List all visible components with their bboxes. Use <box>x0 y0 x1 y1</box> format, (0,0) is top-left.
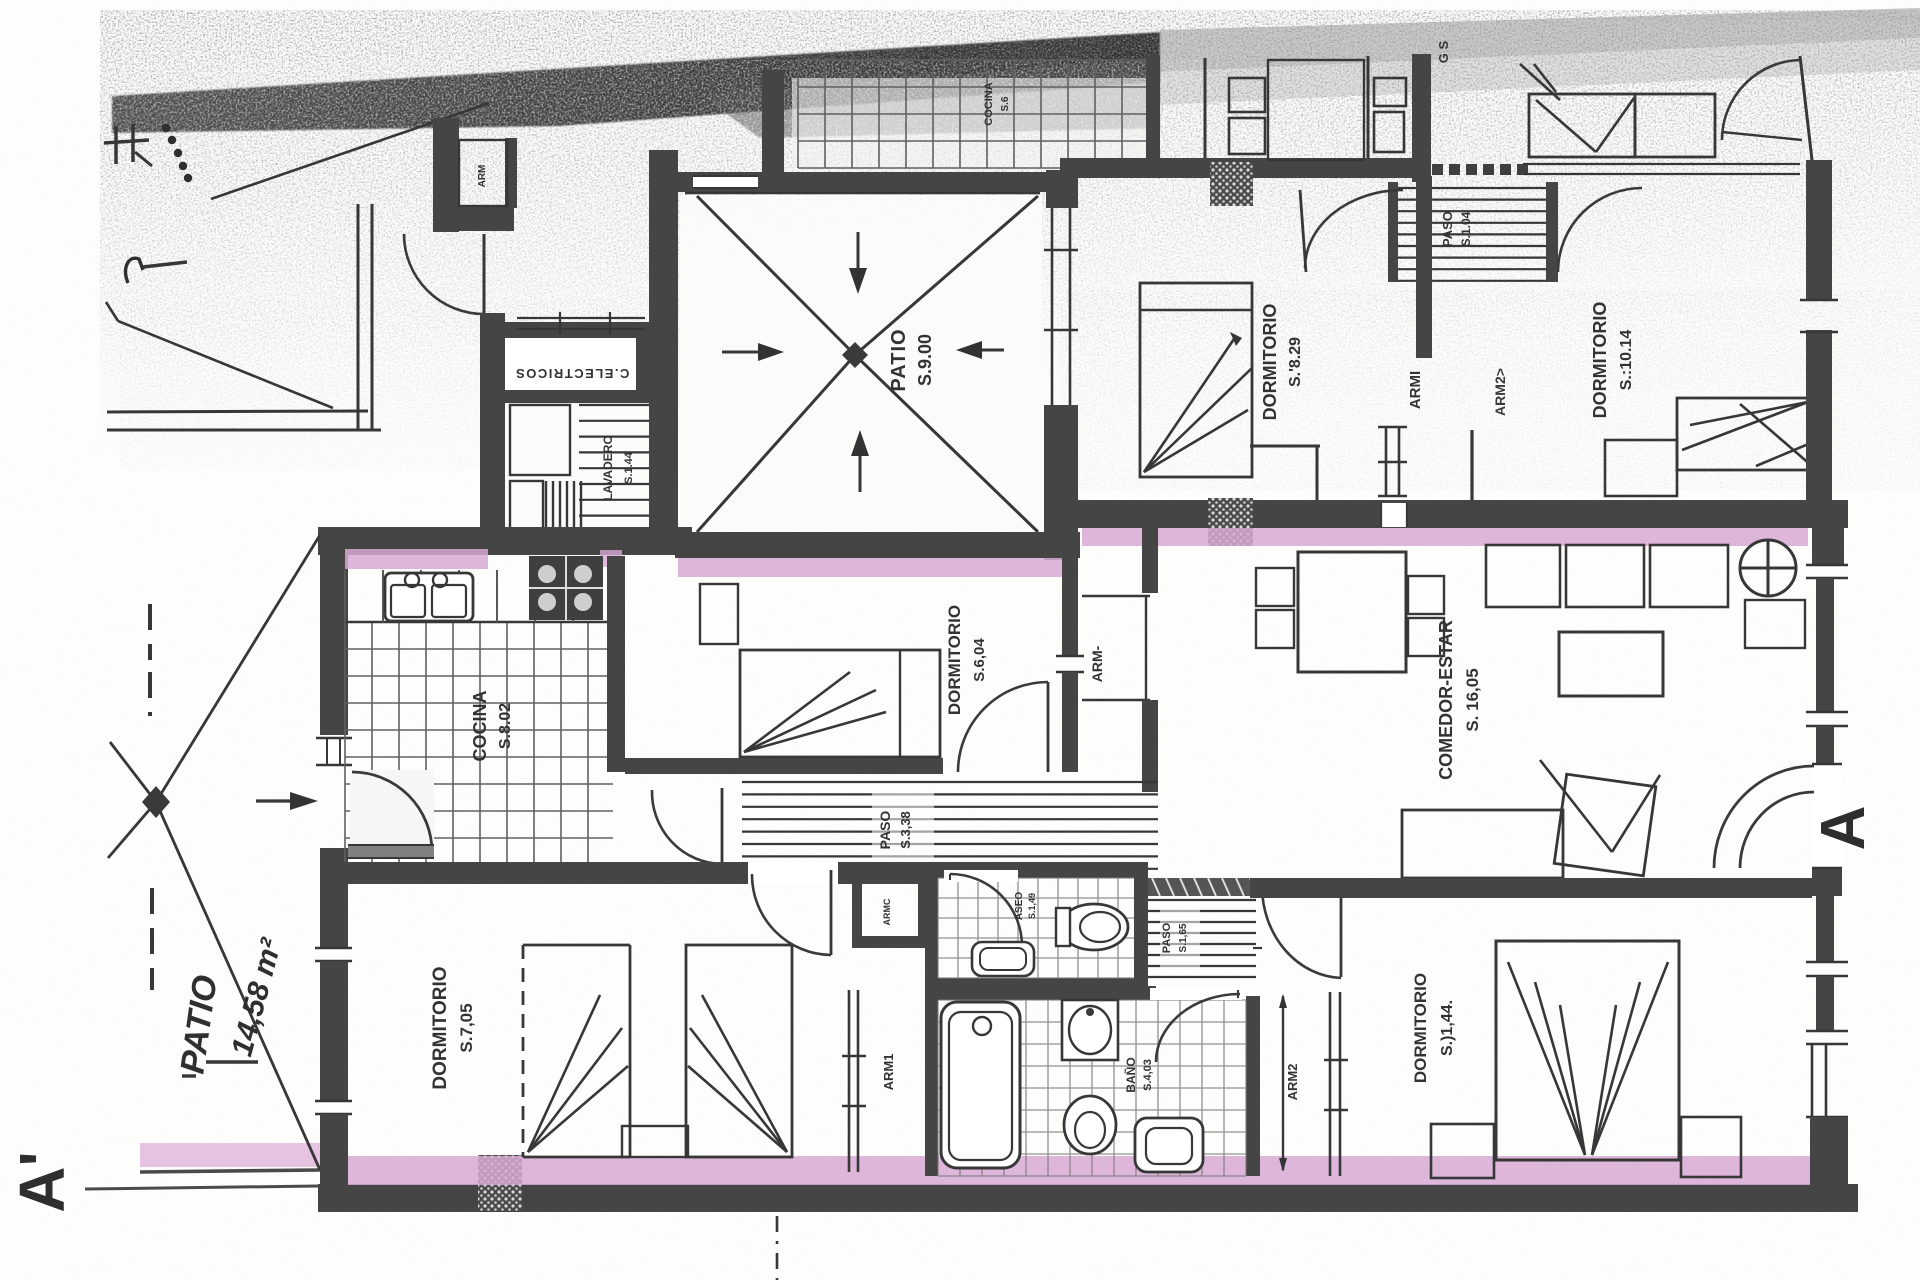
svg-text:C.ELECTRICOS: C.ELECTRICOS <box>515 366 630 381</box>
svg-text:S.6,04: S.6,04 <box>971 638 988 682</box>
svg-text:BAÑO: BAÑO <box>1123 1057 1138 1092</box>
svg-text:ASEO: ASEO <box>1014 892 1025 921</box>
svg-text:DORMITORIO: DORMITORIO <box>1590 302 1610 419</box>
svg-text:S.'8.29: S.'8.29 <box>1287 337 1304 387</box>
svg-text:DORMITORIO: DORMITORIO <box>1260 304 1280 421</box>
svg-text:S.1.04: S.1.04 <box>1459 211 1473 246</box>
svg-text:ARM: ARM <box>477 165 488 188</box>
svg-text:S.)1,44.: S.)1,44. <box>1439 1000 1456 1056</box>
svg-text:DORMITORIO: DORMITORIO <box>1411 973 1430 1083</box>
svg-text:S.3,38: S.3,38 <box>898 811 913 849</box>
svg-text:S.1,65: S.1,65 <box>1178 923 1189 952</box>
svg-text:G S: G S <box>1436 40 1451 63</box>
svg-text:PASO: PASO <box>877 811 893 850</box>
svg-text:LAVADERO: LAVADERO <box>601 435 615 501</box>
svg-text:S.8.02: S.8.02 <box>497 703 514 749</box>
svg-text:COCINA: COCINA <box>983 82 995 125</box>
svg-text:ARM-: ARM- <box>1089 645 1105 682</box>
svg-text:ARMC: ARMC <box>882 898 892 925</box>
svg-text:S.7,05: S.7,05 <box>457 1003 476 1052</box>
svg-text:COCINA: COCINA <box>470 691 490 762</box>
svg-text:PATIO: PATIO <box>888 328 910 391</box>
svg-text:ARM1: ARM1 <box>881 1054 896 1091</box>
svg-text:S.1,49: S.1,49 <box>1027 893 1037 919</box>
svg-text:DORMITORIO: DORMITORIO <box>430 966 451 1089</box>
svg-text:S.6: S.6 <box>1000 96 1011 111</box>
svg-text:PASO: PASO <box>1161 922 1173 953</box>
svg-text:S.1.44: S.1.44 <box>623 451 635 484</box>
svg-text:A': A' <box>6 1151 78 1212</box>
svg-text:ARMI: ARMI <box>1407 371 1424 409</box>
svg-text:ARM2: ARM2 <box>1285 1064 1300 1101</box>
svg-text:S.:10.14: S.:10.14 <box>1618 330 1635 391</box>
svg-text:S.9.00: S.9.00 <box>915 334 935 386</box>
svg-text:PASO: PASO <box>1440 211 1455 247</box>
svg-text:S. 16,05: S. 16,05 <box>1463 668 1482 731</box>
svg-text:DORMITORIO: DORMITORIO <box>945 605 964 715</box>
svg-text:A: A <box>1809 806 1878 851</box>
svg-text:ARM2>: ARM2> <box>1492 368 1508 416</box>
svg-text:COMEDOR-ESTAR: COMEDOR-ESTAR <box>1436 620 1456 780</box>
svg-text:S.4,03: S.4,03 <box>1142 1059 1154 1091</box>
